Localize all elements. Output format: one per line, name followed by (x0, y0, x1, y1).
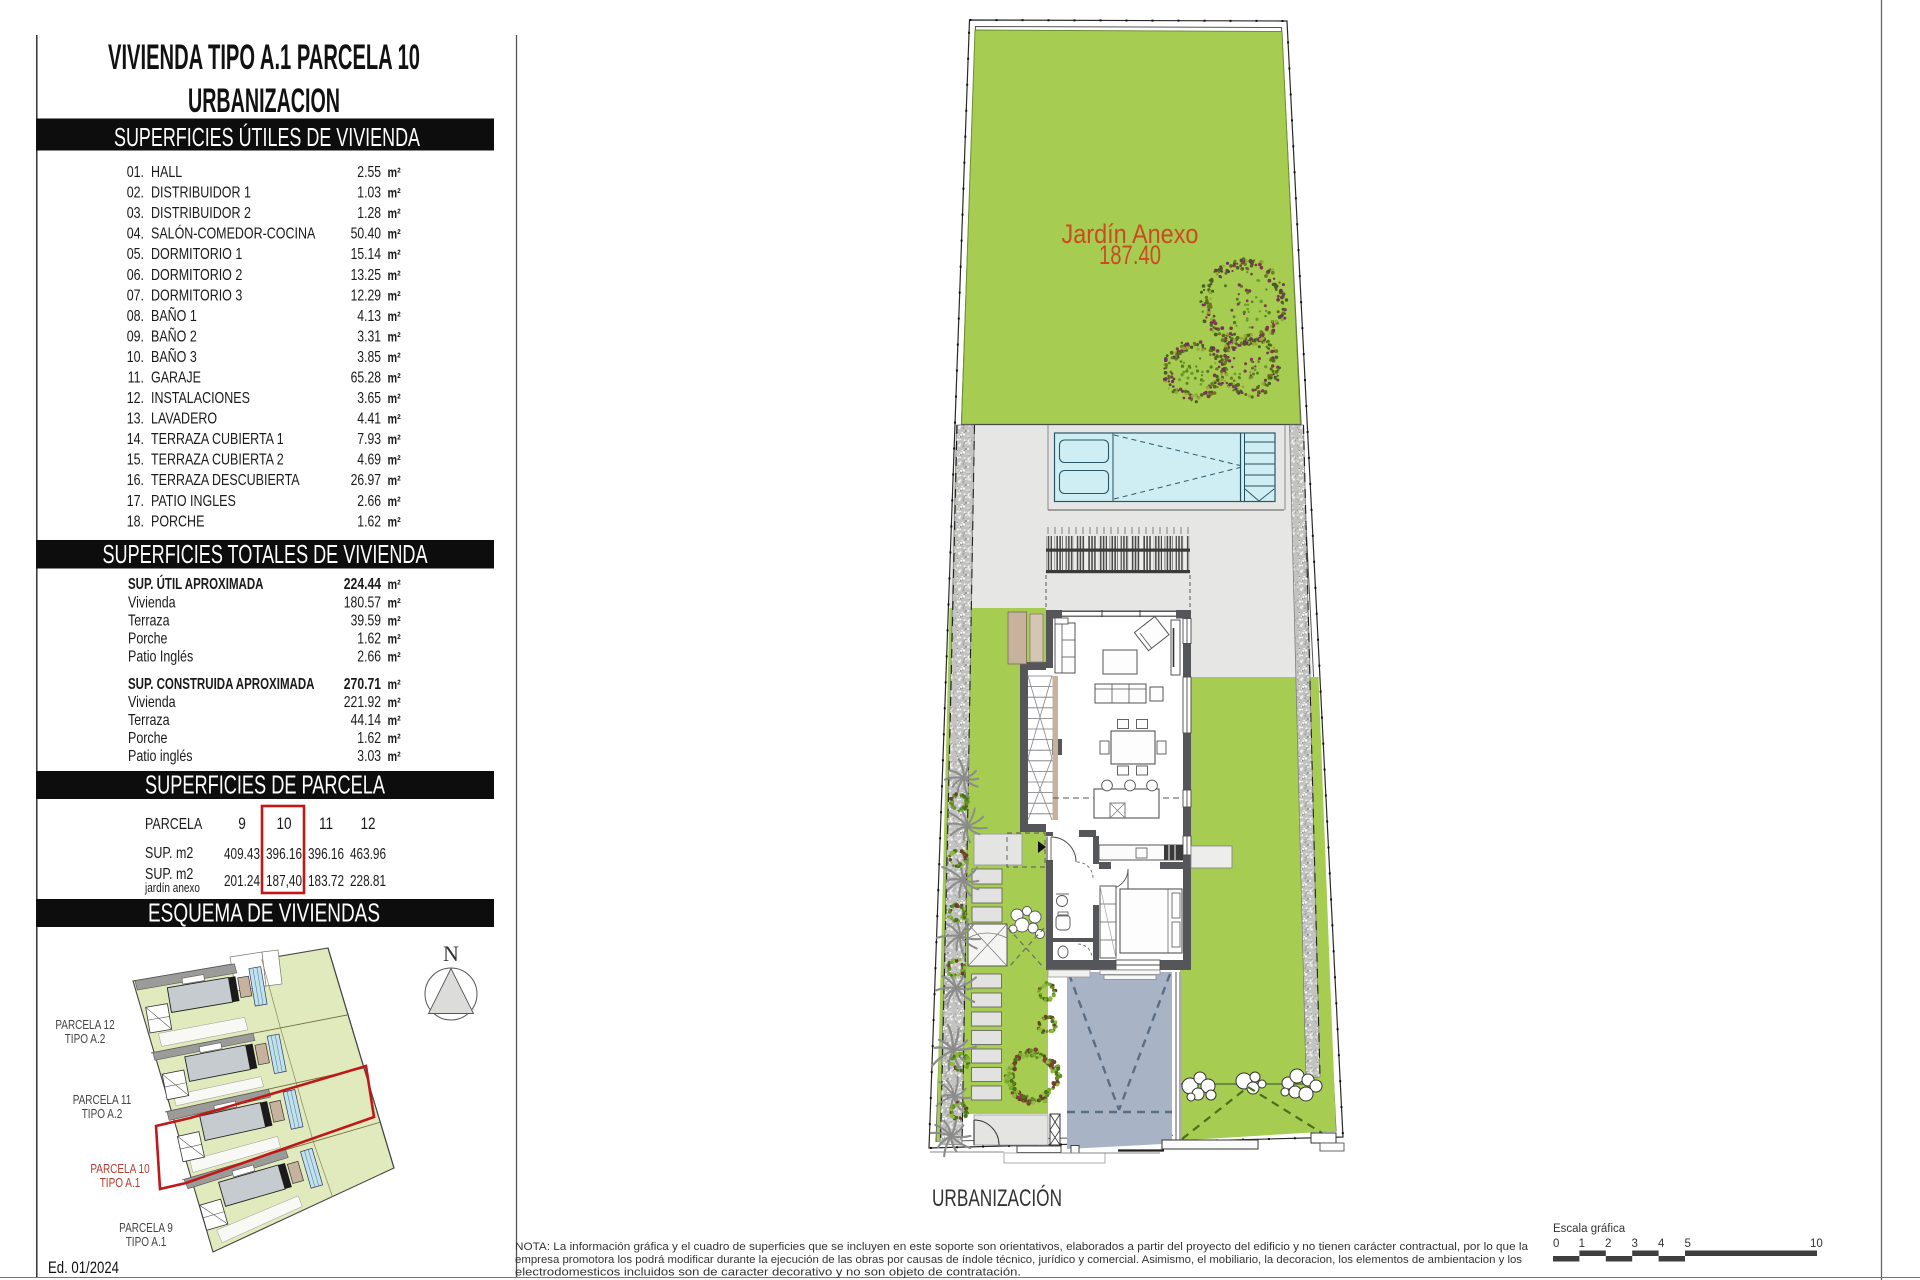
svg-text:m²: m² (388, 731, 402, 746)
svg-text:1.03: 1.03 (357, 185, 381, 202)
svg-text:4.69: 4.69 (357, 452, 381, 469)
svg-text:LAVADERO: LAVADERO (151, 411, 217, 428)
svg-text:SUP. ÚTIL APROXIMADA: SUP. ÚTIL APROXIMADA (128, 574, 264, 593)
svg-text:DORMITORIO 2: DORMITORIO 2 (151, 267, 242, 284)
svg-text:2: 2 (1605, 1238, 1611, 1250)
svg-text:PORCHE: PORCHE (151, 513, 204, 530)
svg-text:1.62: 1.62 (357, 730, 381, 747)
svg-text:396.16: 396.16 (266, 846, 302, 863)
svg-text:PARCELA 12: PARCELA 12 (55, 1018, 114, 1032)
svg-text:VIVIENDA TIPO A.1 PARCELA 10: VIVIENDA TIPO A.1 PARCELA 10 (108, 38, 420, 77)
svg-text:15.: 15. (127, 452, 144, 469)
svg-text:15.14: 15.14 (351, 246, 381, 263)
svg-text:TERRAZA DESCUBIERTA: TERRAZA DESCUBIERTA (151, 472, 300, 489)
svg-text:INSTALACIONES: INSTALACIONES (151, 390, 250, 407)
svg-text:Escala gráfica: Escala gráfica (1553, 1223, 1626, 1235)
svg-text:DISTRIBUIDOR 2: DISTRIBUIDOR 2 (151, 205, 251, 222)
svg-text:06.: 06. (127, 267, 144, 284)
svg-text:m²: m² (388, 309, 402, 324)
svg-text:N: N (443, 941, 459, 966)
svg-text:201.24: 201.24 (224, 873, 260, 890)
svg-text:463.96: 463.96 (350, 846, 386, 863)
svg-text:PARCELA 10: PARCELA 10 (90, 1162, 149, 1176)
svg-text:183.72: 183.72 (308, 873, 344, 890)
svg-text:SALÓN-COMEDOR-COCINA: SALÓN-COMEDOR-COCINA (151, 224, 316, 243)
svg-text:TERRAZA CUBIERTA 2: TERRAZA CUBIERTA 2 (151, 452, 284, 469)
svg-text:65.28: 65.28 (351, 370, 381, 387)
svg-text:396.16: 396.16 (308, 846, 344, 863)
svg-text:50.40: 50.40 (351, 226, 381, 243)
svg-text:13.: 13. (127, 411, 144, 428)
svg-text:PARCELA 11: PARCELA 11 (73, 1093, 132, 1107)
svg-text:39.59: 39.59 (351, 613, 381, 630)
svg-text:SUP. CONSTRUIDA APROXIMADA: SUP. CONSTRUIDA APROXIMADA (128, 676, 315, 693)
svg-text:electrodomesticos incluidos so: electrodomesticos incluidos son de carac… (515, 1267, 1021, 1279)
svg-text:BAÑO 2: BAÑO 2 (151, 325, 197, 345)
svg-text:DORMITORIO 1: DORMITORIO 1 (151, 246, 242, 263)
svg-text:187,40: 187,40 (266, 873, 302, 890)
svg-text:m²: m² (388, 713, 402, 728)
svg-text:DORMITORIO 3: DORMITORIO 3 (151, 287, 242, 304)
svg-text:12: 12 (360, 814, 375, 833)
svg-text:2.66: 2.66 (357, 493, 381, 510)
svg-text:26.97: 26.97 (351, 472, 381, 489)
svg-text:228.81: 228.81 (350, 873, 386, 890)
svg-text:Terraza: Terraza (128, 613, 170, 630)
svg-text:12.: 12. (127, 390, 144, 407)
svg-text:16.: 16. (127, 472, 144, 489)
svg-text:03.: 03. (127, 205, 144, 222)
svg-text:180.57: 180.57 (344, 595, 381, 612)
svg-text:URBANIZACIÓN: URBANIZACIÓN (932, 1185, 1062, 1212)
svg-text:DISTRIBUIDOR 1: DISTRIBUIDOR 1 (151, 185, 251, 202)
svg-text:m²: m² (388, 695, 402, 710)
svg-text:10: 10 (276, 814, 291, 833)
svg-text:m²: m² (388, 596, 402, 611)
svg-text:5: 5 (1685, 1238, 1691, 1250)
svg-text:m²: m² (388, 614, 402, 629)
svg-text:1.28: 1.28 (357, 205, 381, 222)
svg-text:TIPO A.1: TIPO A.1 (100, 1176, 141, 1190)
svg-text:SUPERFICIES ÚTILES DE VIVIENDA: SUPERFICIES ÚTILES DE VIVIENDA (114, 122, 420, 152)
svg-text:PARCELA 9: PARCELA 9 (119, 1221, 173, 1235)
svg-text:m²: m² (388, 329, 402, 344)
svg-text:m²: m² (388, 165, 402, 180)
svg-text:TIPO A.1: TIPO A.1 (126, 1235, 167, 1249)
svg-text:m²: m² (388, 412, 402, 427)
svg-text:02.: 02. (127, 185, 144, 202)
svg-text:17.: 17. (127, 493, 144, 510)
svg-text:TIPO A.2: TIPO A.2 (82, 1107, 123, 1121)
svg-text:11: 11 (319, 814, 333, 833)
svg-text:GARAJE: GARAJE (151, 370, 201, 387)
svg-text:PATIO INGLES: PATIO INGLES (151, 493, 236, 510)
svg-text:4.13: 4.13 (357, 308, 381, 325)
svg-text:SUPERFICIES TOTALES DE VIVIEND: SUPERFICIES TOTALES DE VIVIENDA (103, 539, 428, 569)
svg-text:1: 1 (1579, 1238, 1585, 1250)
svg-text:4: 4 (1658, 1238, 1665, 1250)
svg-text:HALL: HALL (151, 164, 182, 181)
svg-text:Vivienda: Vivienda (128, 694, 176, 711)
svg-text:m²: m² (388, 391, 402, 406)
svg-text:14.: 14. (127, 431, 144, 448)
svg-text:04.: 04. (127, 226, 144, 243)
svg-text:3.65: 3.65 (357, 390, 381, 407)
svg-text:1.62: 1.62 (357, 631, 381, 648)
svg-text:m²: m² (388, 186, 402, 201)
svg-text:3.85: 3.85 (357, 349, 381, 366)
svg-text:m²: m² (388, 371, 402, 386)
svg-text:Porche: Porche (128, 631, 168, 648)
svg-text:m²: m² (388, 247, 402, 262)
svg-text:BAÑO 3: BAÑO 3 (151, 346, 197, 366)
svg-text:11.: 11. (128, 370, 144, 387)
svg-text:9: 9 (238, 814, 246, 833)
svg-text:m²: m² (388, 577, 402, 592)
svg-text:BAÑO 1: BAÑO 1 (151, 305, 197, 325)
svg-text:1.62: 1.62 (357, 513, 381, 530)
svg-text:3.31: 3.31 (357, 328, 381, 345)
svg-text:m²: m² (388, 749, 402, 764)
svg-text:m²: m² (388, 432, 402, 447)
svg-text:270.71: 270.71 (344, 676, 381, 693)
svg-text:18.: 18. (127, 513, 144, 530)
svg-text:jardín anexo: jardín anexo (144, 881, 200, 895)
svg-text:m²: m² (388, 632, 402, 647)
svg-text:07.: 07. (127, 287, 144, 304)
svg-text:08.: 08. (127, 308, 144, 325)
svg-text:m²: m² (388, 288, 402, 303)
svg-text:Patio inglés: Patio inglés (128, 748, 193, 765)
svg-text:7.93: 7.93 (357, 431, 381, 448)
svg-text:m²: m² (388, 268, 402, 283)
svg-text:2.55: 2.55 (357, 164, 381, 181)
svg-text:224.44: 224.44 (344, 576, 381, 593)
svg-text:0: 0 (1553, 1238, 1559, 1250)
svg-text:m²: m² (388, 650, 402, 665)
svg-text:10: 10 (1810, 1238, 1823, 1250)
svg-text:URBANIZACION: URBANIZACION (188, 82, 340, 120)
svg-text:Ed. 01/2024: Ed. 01/2024 (48, 1258, 119, 1277)
svg-text:TERRAZA CUBIERTA 1: TERRAZA CUBIERTA 1 (151, 431, 284, 448)
svg-text:2.66: 2.66 (357, 649, 381, 666)
svg-text:empresa promotora los podrá mo: empresa promotora los podrá modificar du… (515, 1254, 1522, 1266)
svg-text:05.: 05. (127, 246, 144, 263)
svg-text:409.43: 409.43 (224, 846, 260, 863)
svg-text:09.: 09. (127, 328, 144, 345)
svg-text:m²: m² (388, 227, 402, 242)
svg-text:ESQUEMA DE VIVIENDAS: ESQUEMA DE VIVIENDAS (148, 898, 380, 928)
svg-text:187.40: 187.40 (1099, 240, 1161, 270)
svg-text:m²: m² (388, 677, 402, 692)
svg-text:Vivienda: Vivienda (128, 595, 176, 612)
svg-text:Porche: Porche (128, 730, 168, 747)
svg-text:01.: 01. (127, 164, 144, 181)
svg-text:m²: m² (388, 494, 402, 509)
svg-text:12.29: 12.29 (351, 287, 381, 304)
svg-text:Terraza: Terraza (128, 712, 170, 729)
svg-text:SUPERFICIES DE PARCELA: SUPERFICIES DE PARCELA (145, 770, 385, 800)
svg-text:44.14: 44.14 (351, 712, 381, 729)
svg-text:Patio Inglés: Patio Inglés (128, 649, 193, 666)
svg-text:PARCELA: PARCELA (145, 816, 203, 833)
svg-text:221.92: 221.92 (344, 694, 381, 711)
svg-text:3.03: 3.03 (357, 748, 381, 765)
svg-text:m²: m² (388, 453, 402, 468)
svg-text:m²: m² (388, 350, 402, 365)
svg-text:10.: 10. (127, 349, 144, 366)
svg-text:3: 3 (1632, 1238, 1638, 1250)
svg-text:TIPO A.2: TIPO A.2 (65, 1032, 106, 1046)
svg-text:SUP. m2: SUP. m2 (145, 845, 193, 862)
svg-text:NOTA: La información gráfica y: NOTA: La información gráfica y el cuadro… (515, 1241, 1529, 1253)
svg-text:4.41: 4.41 (357, 411, 381, 428)
svg-text:m²: m² (388, 473, 402, 488)
svg-text:m²: m² (388, 206, 402, 221)
svg-text:m²: m² (388, 514, 402, 529)
svg-text:13.25: 13.25 (351, 267, 381, 284)
